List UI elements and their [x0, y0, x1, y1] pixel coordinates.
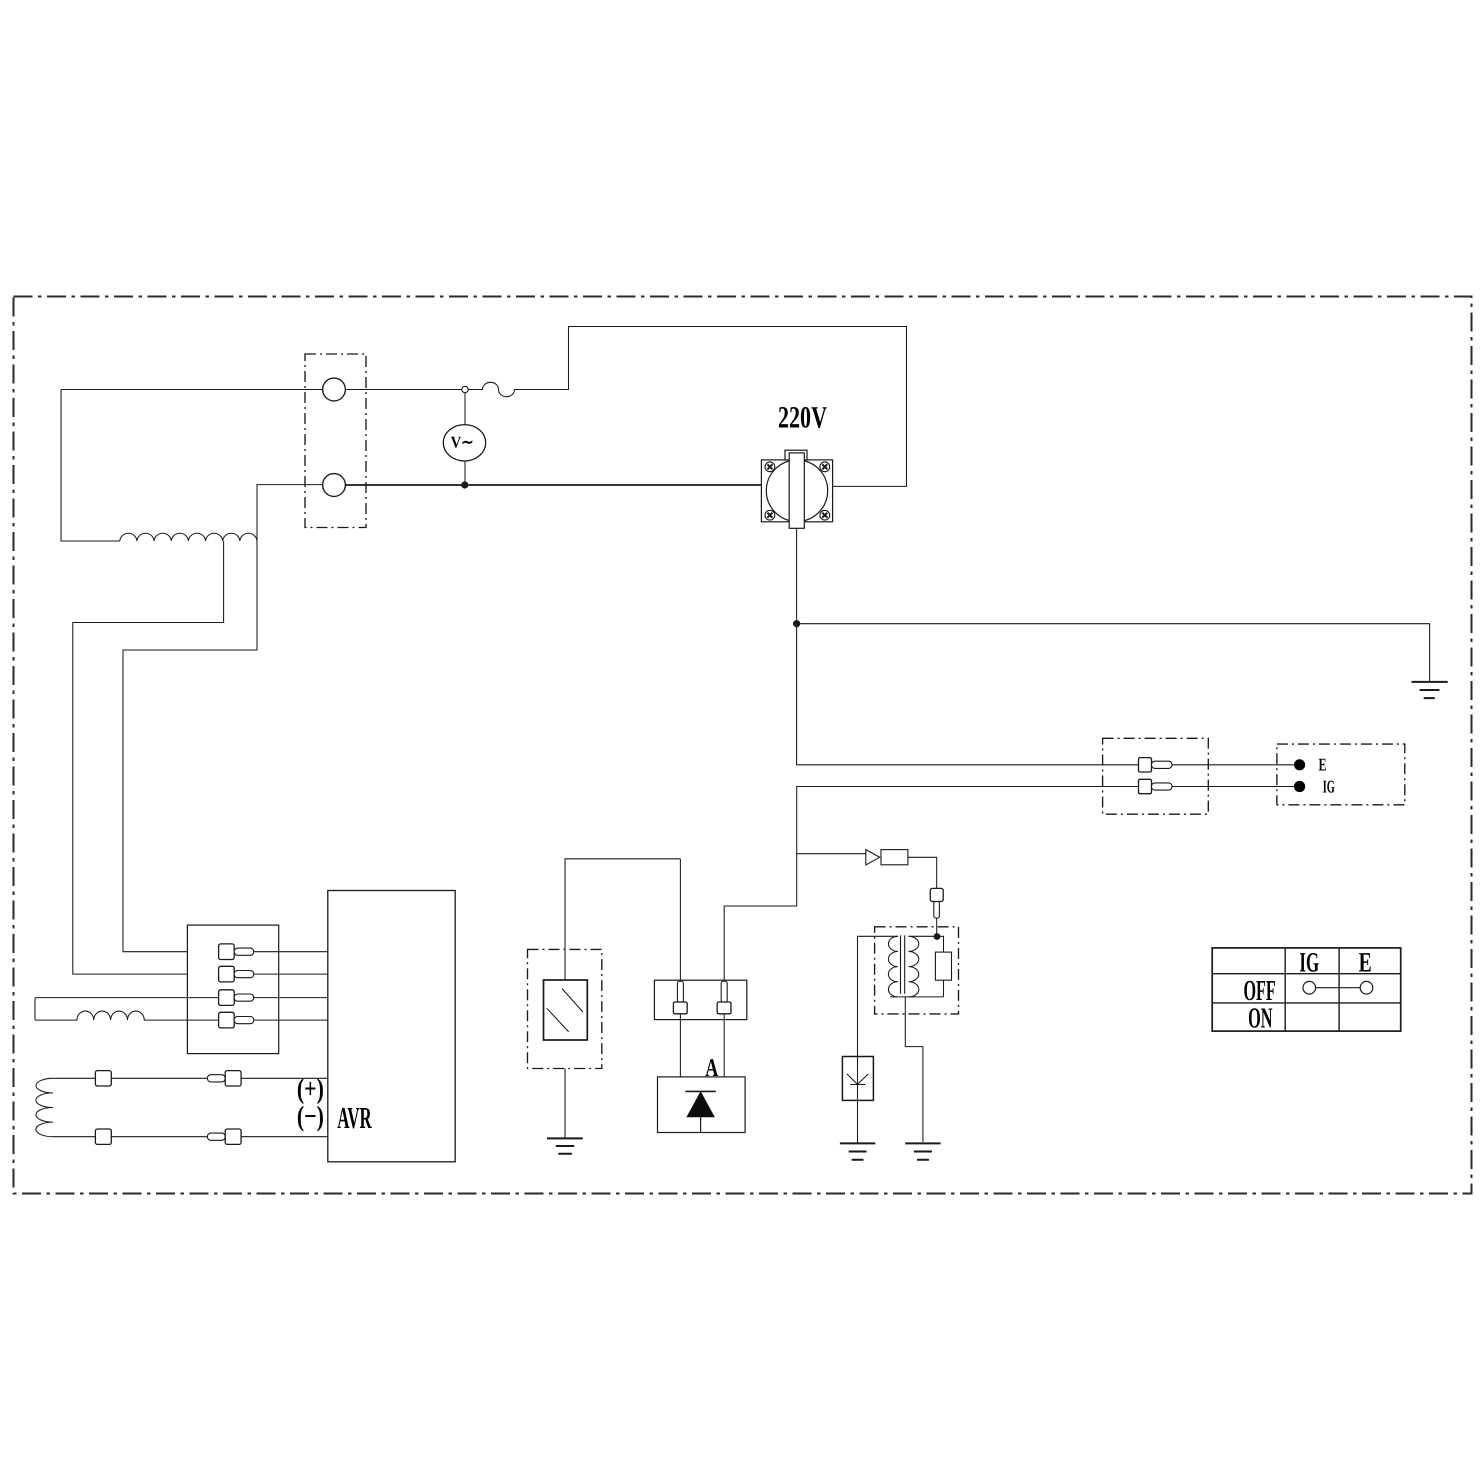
svg-text:AVR: AVR: [337, 1101, 372, 1135]
svg-text:E: E: [1319, 755, 1327, 775]
svg-text:ON: ON: [1248, 1002, 1272, 1034]
svg-text:(−): (−): [297, 1101, 324, 1132]
svg-text:IG: IG: [1299, 947, 1319, 978]
svg-text:V∼: V∼: [451, 433, 474, 452]
svg-text:IG: IG: [1323, 776, 1335, 796]
svg-text:220V: 220V: [778, 400, 827, 435]
svg-text:E: E: [1359, 947, 1372, 978]
